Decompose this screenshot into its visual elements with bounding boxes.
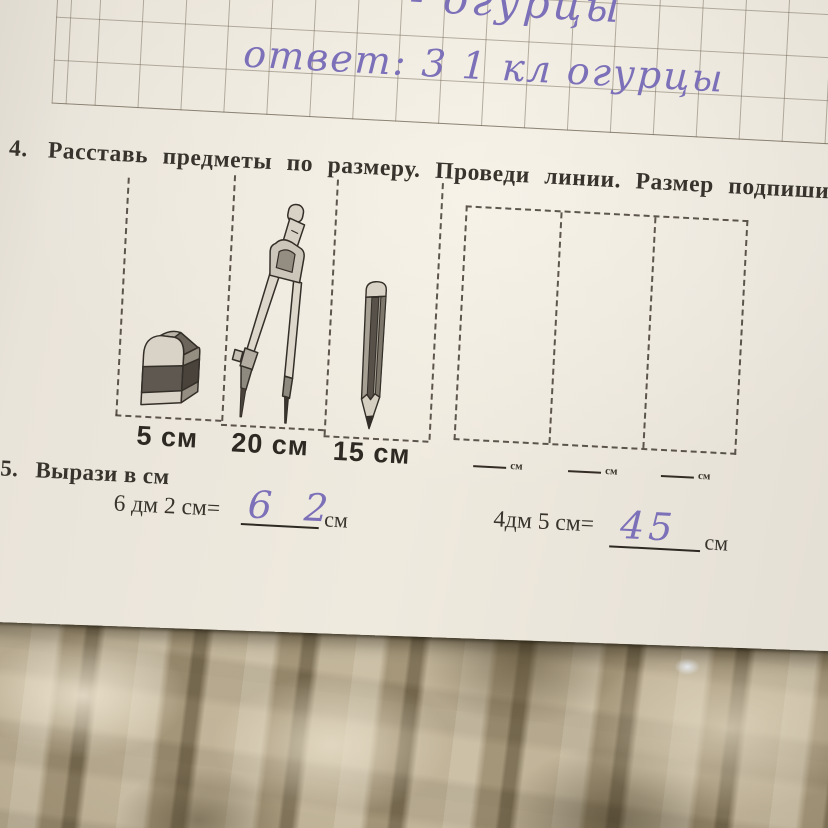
object-column-divider — [429, 183, 444, 440]
task5-title: Вырази в см — [35, 457, 170, 490]
paper-content: - огурцы ответ: 3 1 кл огурцы 4. Расстав… — [0, 0, 828, 671]
worksheet-paper: - огурцы ответ: 3 1 кл огурцы 4. Расстав… — [0, 0, 828, 654]
answer-blank-line — [661, 468, 694, 479]
task5-heading: 5. Вырази в см — [0, 455, 170, 490]
eraser-illustration — [136, 327, 205, 418]
size-answer-slot: см — [473, 458, 523, 473]
size-label-pencil: 15 см — [309, 435, 434, 472]
compass-illustration — [228, 200, 312, 427]
size-answer-slot: см — [661, 468, 711, 483]
unit-label: см — [698, 470, 711, 483]
task4-number: 4. — [8, 135, 28, 163]
task5-number: 5. — [0, 455, 19, 482]
task4-instruction: Расставь предметы по размеру. Проведи ли… — [47, 137, 828, 205]
target-box-divider — [548, 212, 562, 443]
conversion-prompt-2: 4дм 5 см= — [493, 506, 595, 538]
target-box-divider — [642, 217, 656, 448]
task4-heading: 4. Расставь предметы по размеру. Проведи… — [8, 135, 828, 206]
unit-label: см — [510, 460, 523, 473]
unit-label: см — [605, 465, 618, 478]
pencil-illustration — [353, 278, 393, 435]
object-column-divider — [324, 180, 339, 436]
size-answer-slot: см — [568, 463, 618, 478]
conversion-prompt-1: 6 дм 2 см= — [113, 490, 221, 523]
handwritten-answer-2: 45 — [619, 503, 678, 550]
sorting-target-box — [454, 205, 749, 454]
unit-label: см — [324, 506, 349, 533]
answer-blank-line — [568, 463, 601, 474]
unit-label: см — [704, 529, 729, 556]
answer-blank-line — [473, 458, 506, 469]
worksheet-photo: - огурцы ответ: 3 1 кл огурцы 4. Расстав… — [0, 0, 828, 828]
object-column-divider — [115, 178, 129, 416]
